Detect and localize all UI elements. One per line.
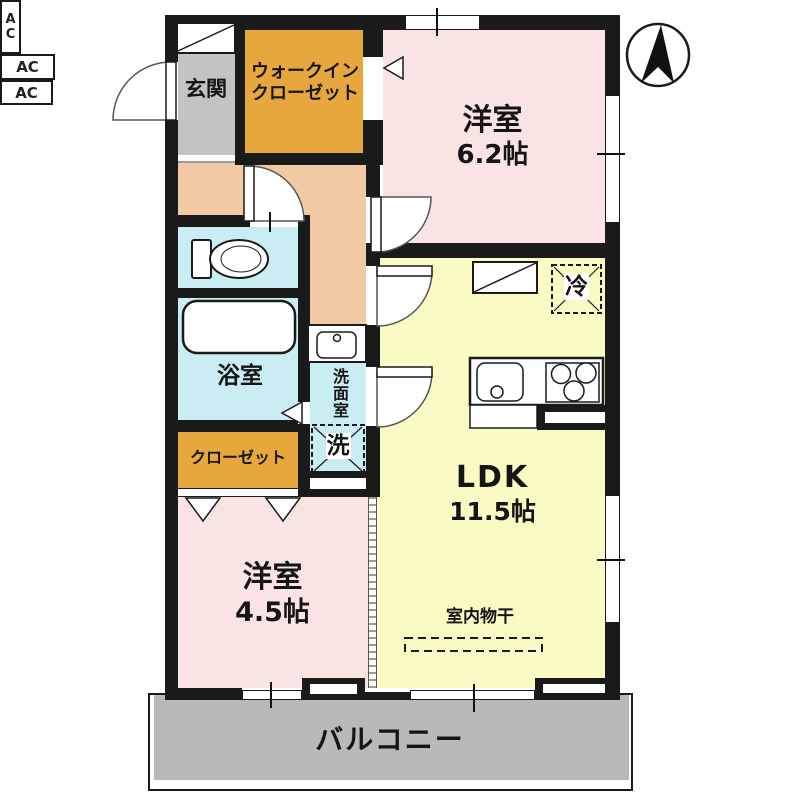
ldk-size-label: 11.5帖 <box>430 498 555 526</box>
bathtub-icon <box>183 301 295 353</box>
wic-label-line1: ウォークイン <box>240 62 370 82</box>
floor-plan: 玄関 ウォークイン クローゼット 洋室 6.2帖 浴室 洗面室 洗 冷 クローゼ… <box>0 0 800 800</box>
bedroom1-label: 洋室 <box>420 104 565 138</box>
balcony-label: バルコニー <box>300 724 480 755</box>
bath-door-marker <box>282 402 302 424</box>
bedroom2-label: 洋室 <box>200 561 345 595</box>
fridge-label: 冷 <box>552 275 601 301</box>
washroom-door-leaf <box>377 367 432 377</box>
ldk-door-swing <box>377 271 432 326</box>
washroom-label: 洗面室 <box>326 360 348 426</box>
cabinet-icon <box>473 262 537 293</box>
sink-icon <box>308 325 366 362</box>
fridge-label-text: 冷 <box>564 274 589 300</box>
bath-label: 浴室 <box>195 364 285 390</box>
drying-pole-icon <box>405 638 542 651</box>
stove-icon <box>546 363 599 402</box>
closet-folding-door <box>186 498 220 521</box>
kitchen-counter-icon <box>470 358 603 428</box>
entrance-label: 玄関 <box>176 78 236 102</box>
wic-door-marker <box>384 57 403 79</box>
plan-linework <box>0 0 800 800</box>
bedroom1-door-leaf <box>371 197 381 252</box>
toilet-icon <box>192 240 268 278</box>
closet-label: クローゼット <box>178 449 298 467</box>
shoe-cabinet-icon <box>177 23 235 53</box>
ldk-label: LDK <box>430 461 555 495</box>
closet-folding-door <box>266 498 300 521</box>
ldk-door-leaf <box>377 266 432 276</box>
indoor-drying-label: 室内物干 <box>420 608 540 627</box>
washer-label: 洗 <box>312 434 364 460</box>
bedroom2-size-label: 4.5帖 <box>200 598 345 628</box>
entrance-door-leaf <box>166 62 176 120</box>
wic-label-line2: クローゼット <box>240 84 370 104</box>
toilet-door-swing <box>249 166 304 221</box>
compass-north-icon <box>627 24 689 86</box>
washer-label-text: 洗 <box>326 433 351 459</box>
washroom-door-swing <box>377 372 432 427</box>
bedroom1-door-swing <box>376 197 431 252</box>
toilet-door-leaf <box>244 166 254 221</box>
entrance-door-swing <box>113 62 171 120</box>
bedroom1-size-label: 6.2帖 <box>420 141 565 170</box>
